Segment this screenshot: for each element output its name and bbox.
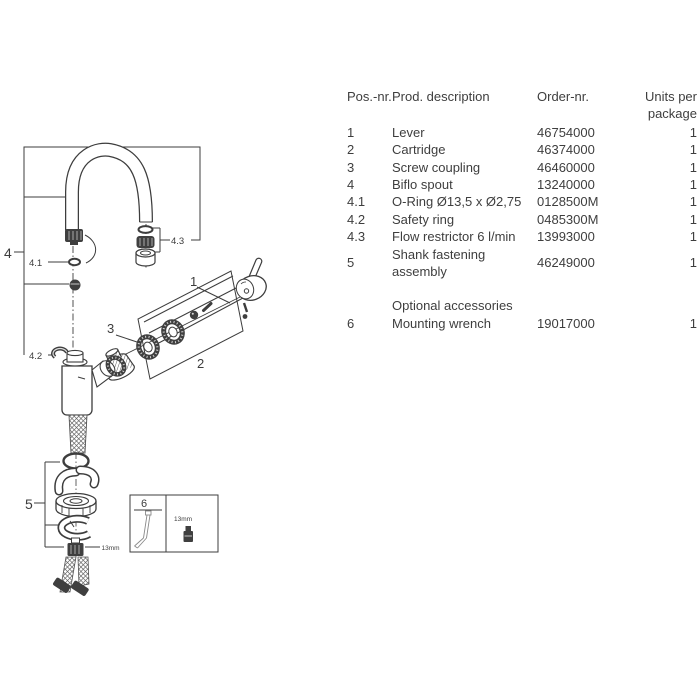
cell-units: 1 — [637, 176, 697, 193]
table-header-row: Pos.-nr. Prod. description Order-nr. Uni… — [347, 88, 697, 123]
part-label-4-2: 4.2 — [29, 351, 42, 362]
table-row: 3 Screw coupling 46460000 1 — [347, 159, 697, 176]
header-description: Prod. description — [392, 88, 537, 105]
cell-desc: Lever — [392, 124, 537, 141]
cell-units: 1 — [637, 254, 697, 271]
o-ring-drawing — [69, 259, 80, 265]
cell-desc: Safety ring — [392, 211, 537, 228]
cell-units: 1 — [637, 141, 697, 158]
cell-pos: 1 — [347, 124, 392, 141]
cell-order: 13240000 — [537, 176, 637, 193]
cell-order: 0485300M — [537, 211, 637, 228]
cell-pos: 5 — [347, 254, 392, 271]
flow-restrictor-drawing — [136, 224, 155, 268]
spout-nut-drawing — [70, 280, 81, 291]
table-row: 4 Biflo spout 13240000 1 — [347, 176, 697, 193]
cell-units: 1 — [637, 193, 697, 210]
part-label-5: 5 — [25, 496, 33, 512]
header-order: Order-nr. — [537, 88, 637, 105]
part-label-3: 3 — [107, 321, 114, 336]
box-wrench-size-label: 13mm — [174, 516, 192, 523]
cell-desc: Screw coupling — [392, 159, 537, 176]
table-row: 1 Lever 46754000 1 — [347, 124, 697, 141]
cell-units: 1 — [637, 211, 697, 228]
cell-pos: 2 — [347, 141, 392, 158]
part3-leader-line — [116, 335, 140, 343]
part-label-1: 1 — [190, 274, 197, 289]
parts-table: Pos.-nr. Prod. description Order-nr. Uni… — [347, 88, 697, 332]
shank-assembly-drawing — [52, 454, 96, 597]
part-label-4-3: 4.3 — [171, 236, 184, 247]
cell-order: 46374000 — [537, 141, 637, 158]
cell-pos: 3 — [347, 159, 392, 176]
cell-desc: Mounting wrench — [392, 315, 537, 332]
cell-desc: Cartridge — [392, 141, 537, 158]
cell-units: 1 — [637, 228, 697, 245]
header-pos: Pos.-nr. — [347, 88, 392, 105]
faucet-body-drawing — [62, 350, 128, 415]
cell-units: 1 — [637, 159, 697, 176]
table-row: 5 Shank fastening assembly 46249000 1 — [347, 246, 697, 281]
hose-upper-drawing — [69, 415, 87, 453]
part-label-6: 6 — [141, 498, 147, 510]
cell-pos: 4.3 — [347, 228, 392, 245]
cell-pos: 4 — [347, 176, 392, 193]
cell-units: 1 — [637, 315, 697, 332]
part-label-2: 2 — [197, 356, 204, 371]
part-label-4: 4 — [4, 245, 12, 261]
cell-pos: 4.1 — [347, 193, 392, 210]
header-units: Units per package — [637, 88, 697, 123]
faucet-exploded-diagram: 4 4.1 4.2 4.3 1 2 — [0, 0, 340, 700]
table-row: 2 Cartridge 46374000 1 — [347, 141, 697, 158]
cell-order: 0128500M — [537, 193, 637, 210]
cell-units: 1 — [637, 124, 697, 141]
part-label-4-1: 4.1 — [29, 258, 42, 269]
cell-desc: Flow restrictor 6 l/min — [392, 228, 537, 245]
cell-order: 13993000 — [537, 228, 637, 245]
table-row: 4.1 O-Ring Ø13,5 x Ø2,75 0128500M 1 — [347, 193, 697, 210]
table-row: 6 Mounting wrench 19017000 1 — [347, 315, 697, 332]
table-section-row: Optional accessories — [347, 297, 697, 314]
cell-order: 46249000 — [537, 254, 637, 271]
cell-order: 19017000 — [537, 315, 637, 332]
wrench-size-label: 13mm — [102, 545, 120, 552]
cell-order: 46754000 — [537, 124, 637, 141]
cell-desc: Biflo spout — [392, 176, 537, 193]
table-row: 4.3 Flow restrictor 6 l/min 13993000 1 — [347, 228, 697, 245]
cell-desc: O-Ring Ø13,5 x Ø2,75 — [392, 193, 537, 210]
table-row: 4.2 Safety ring 0485300M 1 — [347, 211, 697, 228]
cell-pos: 6 — [347, 315, 392, 332]
coupling-ring-drawing — [135, 319, 185, 361]
cell-desc: Shank fastening assembly — [392, 246, 537, 281]
cell-pos: 4.2 — [347, 211, 392, 228]
cell-order: 46460000 — [537, 159, 637, 176]
safety-ring-drawing — [53, 349, 67, 357]
cell-desc: Optional accessories — [392, 297, 537, 314]
